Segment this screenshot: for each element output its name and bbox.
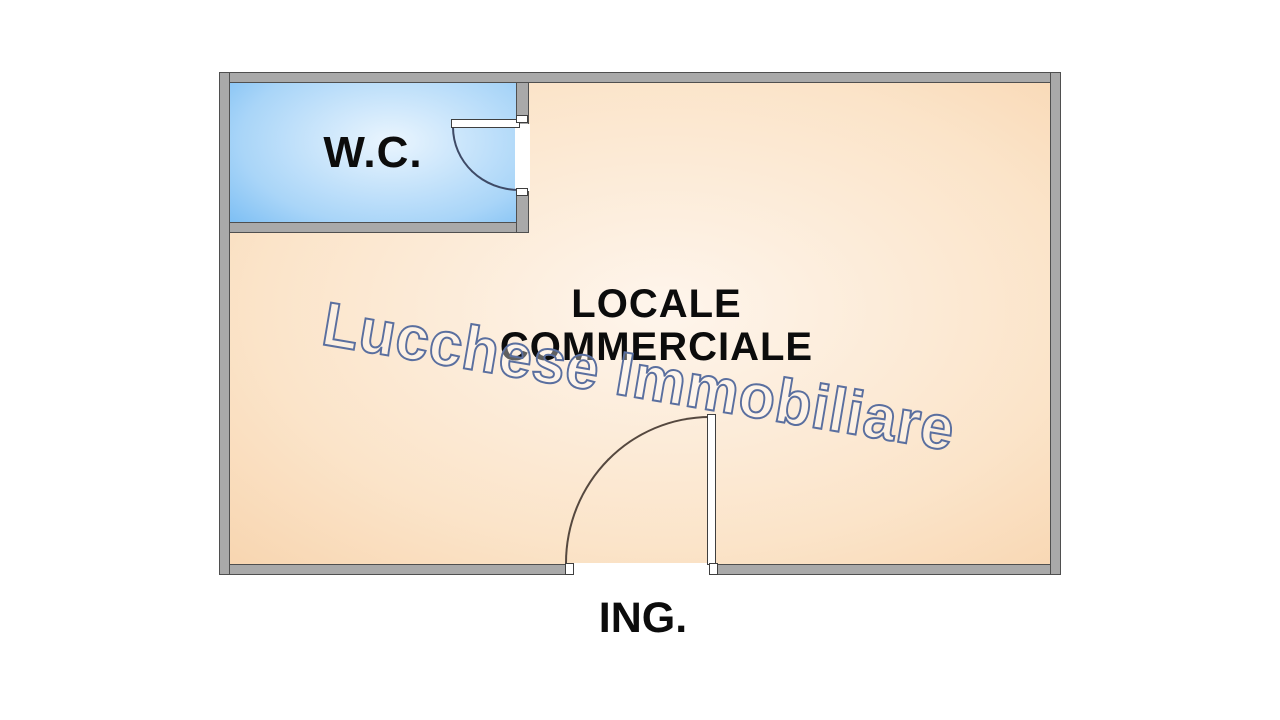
- floor-plan-canvas: W.C. LOCALE COMMERCIALE ING. Lucchese Im…: [0, 0, 1280, 720]
- entrance-door-jamb-right: [709, 563, 718, 575]
- entrance-door-leaf: [707, 414, 716, 565]
- wc-door-jamb-bottom: [516, 188, 528, 196]
- entrance-door-opening: [572, 563, 711, 576]
- entrance-door-jamb-left: [565, 563, 574, 575]
- wc-label-box: W.C.: [230, 83, 516, 222]
- outer-wall-left: [219, 72, 230, 575]
- entrance-label: ING.: [561, 594, 725, 643]
- wc-door-jamb-top: [516, 115, 528, 123]
- outer-wall-right: [1050, 72, 1061, 575]
- main-room-label: LOCALE COMMERCIALE: [486, 283, 827, 369]
- outer-wall-top: [219, 72, 1061, 83]
- wc-room-label: W.C.: [323, 128, 422, 178]
- wc-bottom-wall: [219, 222, 529, 233]
